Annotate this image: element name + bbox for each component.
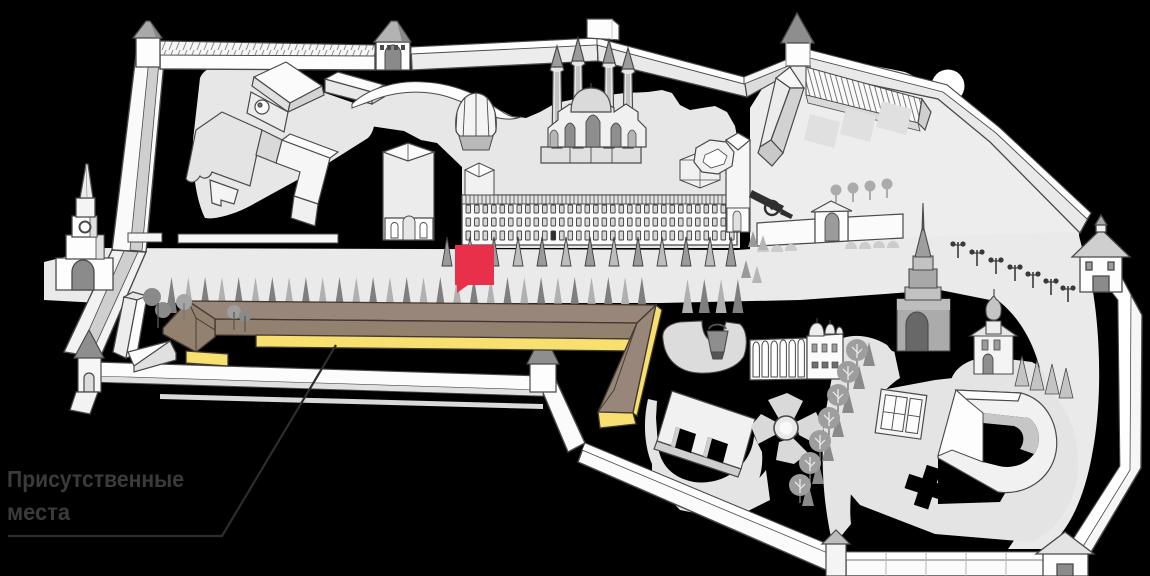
svg-text:Присутственные: Присутственные — [7, 466, 184, 492]
svg-text:места: места — [7, 499, 71, 525]
